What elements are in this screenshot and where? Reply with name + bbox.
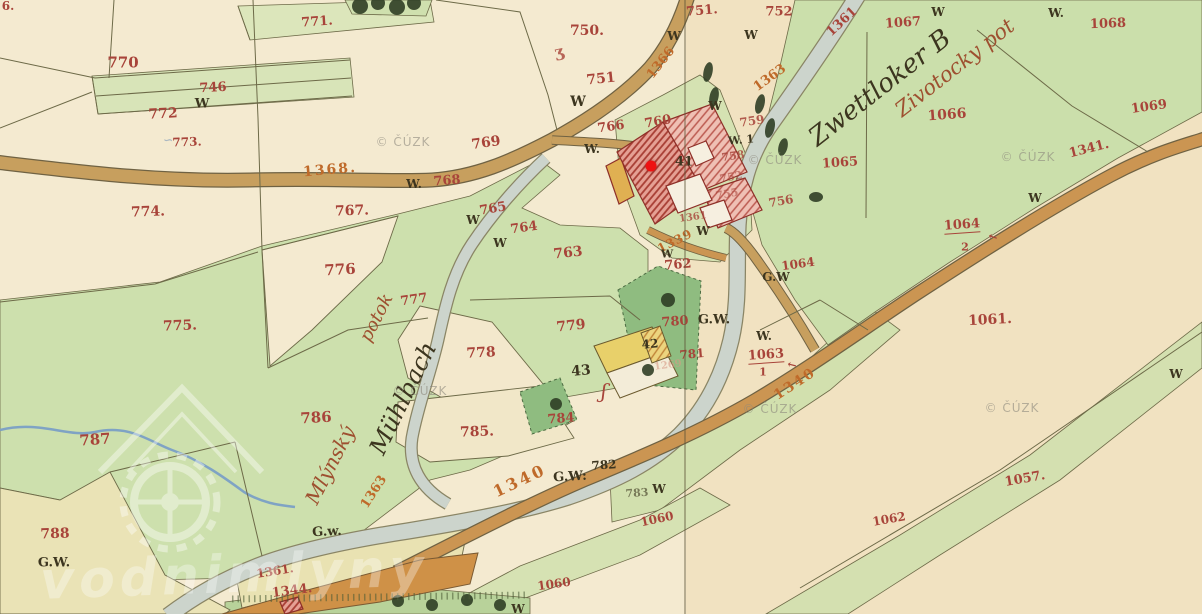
cuzk-copyright-watermark: © ČÚZK — [393, 384, 448, 398]
parcel-number: 1067 — [884, 15, 921, 30]
map-annotation: W — [1169, 368, 1182, 380]
parcel-number: 751 — [586, 71, 617, 88]
map-annotation: G.w. — [312, 525, 342, 540]
parcel-number: 766 — [597, 119, 626, 136]
parcel-number: 752 — [765, 6, 792, 19]
parcel-number: 1064 — [943, 217, 980, 234]
map-annotation: W. — [584, 143, 600, 155]
map-annotation: W — [696, 225, 709, 237]
parcel-number: 769 — [471, 134, 502, 152]
parcel-number: 787 — [79, 431, 111, 448]
parcel-number: 776 — [324, 262, 356, 279]
cuzk-copyright-watermark: © ČÚZK — [1001, 150, 1056, 164]
parcel-number: 783 — [625, 487, 649, 500]
parcel-number: 779 — [556, 318, 587, 335]
map-annotation: W — [493, 237, 506, 249]
map-annotation: ∽ — [163, 134, 173, 146]
parcel-number: 1063 — [747, 347, 784, 364]
parcel-number: 1065 — [821, 155, 858, 170]
cuzk-copyright-watermark: © ČÚZK — [743, 402, 798, 416]
cuzk-copyright-watermark: © ČÚZK — [985, 401, 1040, 415]
parcel-number: 1061. — [968, 312, 1013, 328]
map-annotation: W. 1 — [728, 133, 755, 146]
parcel-number: 786 — [300, 410, 332, 427]
parcel-number: 782 — [591, 458, 617, 472]
parcel-number: 759 — [739, 113, 765, 128]
map-annotation: G.W — [762, 271, 789, 283]
map-annotation: G.W. — [698, 314, 730, 327]
parcel-number: 778 — [466, 345, 496, 361]
cadastral-map-viewport[interactable]: 771.746772773.∽770750.ʒ751751.7527697687… — [0, 0, 1202, 614]
parcel-number: 43 — [571, 363, 592, 379]
map-annotation: W — [570, 95, 586, 109]
parcel-number: 773. — [172, 135, 202, 148]
map-annotation: W — [931, 6, 944, 18]
map-annotation: W — [708, 100, 721, 112]
map-canvas — [0, 0, 1202, 614]
sheet-seam-line — [684, 0, 686, 614]
parcel-number: 746 — [199, 81, 227, 95]
parcel-number: 781 — [679, 347, 705, 361]
map-annotation: W — [667, 30, 680, 42]
parcel-number: 2 — [961, 242, 969, 253]
parcel-number: 1066 — [927, 107, 967, 124]
parcel-number: 1 — [759, 367, 767, 378]
map-annotation: W. — [756, 330, 772, 342]
parcel-number: 785. — [460, 424, 495, 439]
parcel-number: 774. — [131, 204, 166, 219]
parcel-number: 750. — [570, 24, 604, 38]
map-annotation: W — [744, 29, 757, 41]
map-annotation: W — [195, 98, 210, 111]
mill-location-marker[interactable] — [646, 161, 657, 172]
map-annotation: W — [1028, 192, 1041, 204]
parcel-number: 1068 — [1090, 17, 1127, 31]
cuzk-copyright-watermark: © ČÚZK — [376, 135, 431, 149]
map-annotation: W — [511, 603, 524, 614]
parcel-number: 6. — [2, 0, 15, 12]
parcel-number: 758 — [721, 149, 745, 163]
parcel-number: 775. — [163, 318, 198, 333]
map-annotation: W. — [406, 178, 422, 190]
parcel-number: 751. — [686, 3, 719, 19]
parcel-number: 772 — [148, 106, 178, 122]
map-annotation: W. — [1048, 7, 1064, 19]
parcel-number: 784 — [547, 412, 575, 427]
parcel-number: 777 — [400, 292, 429, 309]
parcel-number: 770 — [107, 56, 138, 71]
parcel-number: 767. — [335, 203, 370, 218]
parcel-number: 42 — [641, 337, 659, 350]
map-annotation: W — [652, 483, 665, 495]
map-annotation: G.W: — [553, 470, 587, 485]
parcel-number: 768 — [433, 174, 461, 189]
map-annotation: W — [661, 249, 673, 260]
parcel-number: 764 — [510, 220, 539, 237]
cuzk-copyright-watermark: © ČÚZK — [748, 153, 803, 167]
parcel-number: 788 — [40, 526, 70, 541]
parcel-number: 771. — [301, 14, 334, 29]
map-annotation: W — [466, 214, 479, 226]
parcel-number: 763 — [553, 245, 584, 262]
